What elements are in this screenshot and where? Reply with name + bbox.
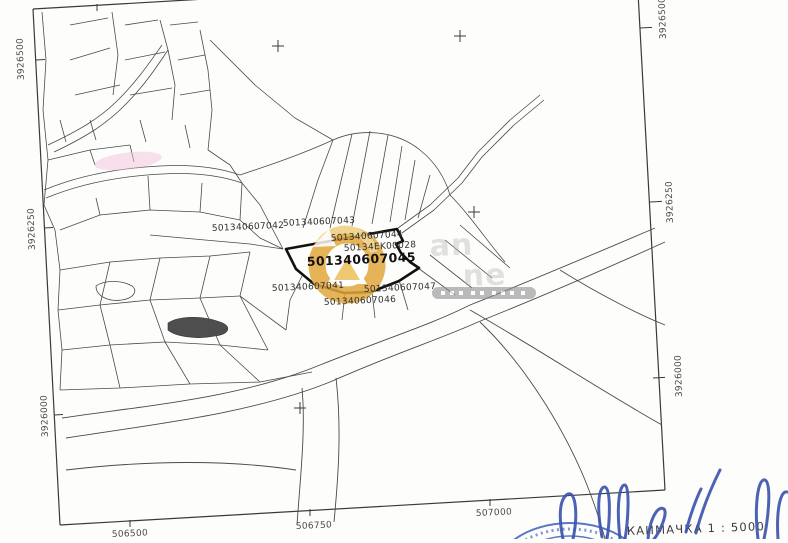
meadow-parcel-lines [55,230,312,390]
easting-label: 506750 [296,520,333,532]
parcel-label: 501340607042 [212,221,285,234]
northing-label: 3926500 [658,0,669,39]
cadastral-map-canvas: an ne 501340607042 501340607043 50134060… [0,0,788,539]
village-parcel-lines [42,12,333,230]
pond-dark-fill [168,317,228,337]
parcel-label: 501340607046 [324,295,397,308]
parcel-label: 501340607047 [364,282,437,295]
northing-label: 3926000 [674,355,685,398]
northing-label: 3926500 [16,38,27,81]
scanned-cadastral-map-page: an ne 501340607042 501340607043 50134060… [0,0,788,539]
northing-label: 3926250 [27,208,38,251]
watermark-band [432,287,536,299]
pink-highlight-mark [93,148,163,173]
road-and-lower-lines [62,228,665,539]
easting-label: 506500 [112,528,149,539]
northing-label: 3926000 [40,395,51,438]
northing-label: 3926250 [665,181,676,224]
easting-label: 507000 [476,507,513,519]
